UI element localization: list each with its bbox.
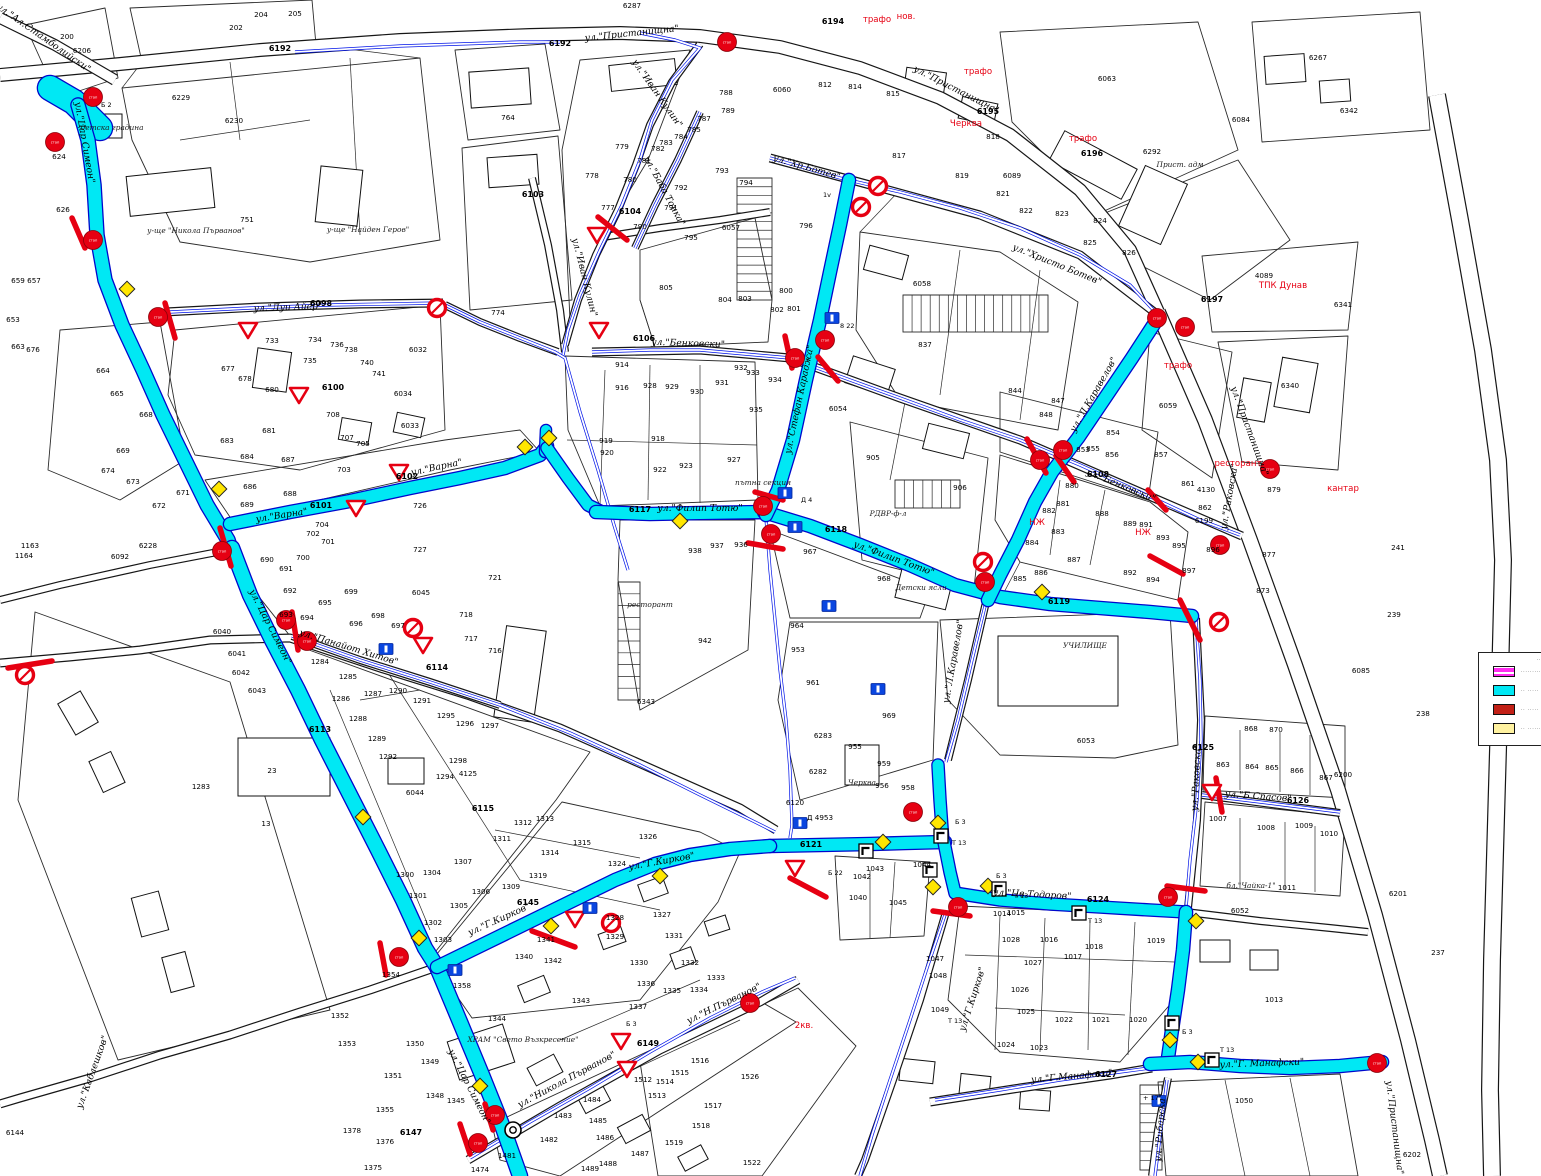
legend-item-route-red: ·· ·····	[1479, 700, 1541, 719]
parcel-number: 888	[1095, 509, 1109, 518]
parcel-number: 669	[116, 446, 130, 455]
parcel-number: 727	[413, 545, 427, 554]
parcel-number: 1328	[606, 913, 625, 922]
parcel-number: 700	[296, 553, 310, 562]
parcel-number: 1017	[1064, 952, 1082, 961]
parcel-number: 1378	[343, 1126, 362, 1135]
parcel-number: 681	[262, 426, 276, 435]
parcel-number: 1297	[481, 721, 499, 730]
parcel-number: 1348	[426, 1091, 445, 1100]
parcel-number: 892	[1123, 568, 1137, 577]
parcel-number: 1319	[529, 871, 548, 880]
parcel-number: 6084	[1232, 115, 1251, 124]
parcel-number: 1481	[498, 1151, 516, 1160]
parcel-number: 735	[303, 356, 317, 365]
parcel-number: 1342	[544, 956, 562, 965]
parcel-number: 659	[11, 276, 25, 285]
street-code: 6118	[825, 525, 848, 534]
parcel-number: 665	[110, 389, 124, 398]
parcel-number: 1312	[514, 818, 532, 827]
parcel-number: 733	[265, 336, 279, 345]
stop-sign-text: стоп	[491, 1113, 500, 1117]
parcel-number: 1290	[389, 686, 408, 695]
parcel-number: 1163	[21, 541, 39, 550]
parcel-number: 1283	[192, 782, 210, 791]
parcel-number: 6044	[406, 788, 425, 797]
building	[388, 758, 424, 784]
parcel-number: 1008	[1257, 823, 1276, 832]
facility-label: УЧИЛИЩЕ	[1063, 641, 1108, 650]
parcel-number: 792	[674, 183, 688, 192]
parcel-number: 1304	[423, 868, 442, 877]
street-code: 6121	[800, 840, 823, 849]
parcel-number: 1487	[631, 1149, 649, 1158]
parcel-number: 6201	[1389, 889, 1407, 898]
info-sign-glyph	[589, 905, 592, 912]
parcel-number: 804	[718, 295, 732, 304]
parcel-number: 1344	[488, 1014, 507, 1023]
info-sign-glyph	[784, 490, 787, 497]
parcel-number: 6060	[773, 85, 792, 94]
parcel-number: 931	[715, 378, 729, 387]
parcel-number: 856	[1105, 450, 1119, 459]
stop-sign-text: стоп	[1153, 316, 1162, 320]
parcel-number: 705	[356, 439, 370, 448]
parcel-number: 937	[710, 541, 724, 550]
parcel-number: 795	[684, 233, 698, 242]
facility-label-red: Черква	[950, 119, 982, 129]
parcel-number: 626	[56, 205, 70, 214]
parcel-number: 736	[330, 340, 344, 349]
parcel-number: 1376	[376, 1137, 395, 1146]
parcel-number: 701	[321, 537, 335, 546]
parcel-number: 1518	[692, 1121, 711, 1130]
parcel-number: 1009	[1295, 821, 1314, 830]
facility-label: ресторант	[627, 600, 673, 609]
parcel-number: 814	[848, 82, 862, 91]
legend-swatch-route-magenta	[1493, 666, 1515, 677]
parcel-number: 815	[886, 89, 900, 98]
parcel-number: 6052	[1231, 906, 1249, 915]
parcel-number: 1514	[656, 1077, 675, 1086]
street-name-label: ул."Филип Тотю"	[656, 503, 742, 514]
parcel-number: 674	[101, 466, 115, 475]
parcel-number: 1486	[596, 1133, 615, 1142]
parcel-number: 6228	[139, 541, 158, 550]
street-code: 6192	[549, 39, 571, 48]
parcel-number: 969	[882, 711, 896, 720]
building	[1200, 940, 1230, 962]
parcel-number: 6089	[1003, 171, 1022, 180]
parcel-number: 929	[665, 382, 679, 391]
parcel-number: 6045	[412, 588, 430, 597]
facility-label-red: НЖ	[1135, 528, 1151, 538]
parcel-number: 1354	[382, 970, 401, 979]
street-code: 6119	[1048, 597, 1071, 606]
street-code: 6103	[522, 190, 544, 199]
parcel-number: 802	[770, 305, 784, 314]
parcel-number: 1340	[515, 952, 534, 961]
parcel-number: 6043	[248, 686, 266, 695]
facility-label-red: ТПК Дунав	[1258, 281, 1307, 291]
parcel-number: 1526	[741, 1072, 760, 1081]
facility-label: ХРАМ "Свето Възкресение"	[466, 1035, 578, 1044]
parcel-number: 691	[279, 564, 293, 573]
facility-label-red: кантар	[1327, 484, 1359, 494]
parcel-number: 812	[818, 80, 832, 89]
parcel-number: 865	[1265, 763, 1279, 772]
street-code: 6101	[310, 501, 333, 510]
stop-sign-text: стоп	[89, 238, 98, 242]
parcel-number: 1164	[15, 551, 34, 560]
parcel-number: 699	[344, 587, 358, 596]
parcel-number: 826	[1122, 248, 1136, 257]
highlighted-street	[770, 842, 945, 846]
street-code: 6113	[309, 725, 331, 734]
stop-sign-text: стоп	[767, 532, 776, 536]
parcel-number: 1307	[454, 857, 472, 866]
stop-sign-text: стоп	[909, 810, 918, 814]
stop-sign-text: стоп	[1373, 1061, 1382, 1065]
parcel-number: 861	[1181, 479, 1195, 488]
parcel-number: 6144	[6, 1128, 25, 1137]
stop-sign-text: стоп	[954, 905, 963, 909]
stop-sign-text: стоп	[89, 95, 98, 99]
parcel-number: 708	[326, 410, 340, 419]
parcel-number: 1513	[648, 1091, 666, 1100]
parcel-number: 930	[690, 387, 704, 396]
parcel-number: 1483	[554, 1111, 572, 1120]
parcel-number: 1021	[1092, 1015, 1110, 1024]
parcel-number: 942	[698, 636, 712, 645]
parcel-number: 883	[1051, 527, 1065, 536]
sign-code-label: Б 2	[101, 101, 112, 109]
parcel-number: 683	[220, 436, 234, 445]
parcel-number: 959	[877, 759, 891, 768]
parcel-number: 1045	[889, 898, 907, 907]
parcel-number: 718	[459, 610, 473, 619]
parcel-number: 953	[791, 645, 805, 654]
direction-sign-icon	[934, 829, 948, 843]
parcel-number: 895	[1172, 541, 1186, 550]
parcel-number: 703	[337, 465, 351, 474]
legend: ·· ····· ··········· ······· ······· ···…	[1478, 652, 1541, 746]
parcel-number: 734	[308, 335, 322, 344]
facility-label: пътна секция	[735, 478, 791, 487]
parcel-number: 801	[787, 304, 801, 313]
parcel-number: 882	[1042, 506, 1056, 515]
parcel-number: 1291	[413, 696, 431, 705]
parcel-number: 821	[996, 189, 1010, 198]
legend-item-route-cyan: ·· ·····	[1479, 681, 1541, 700]
parcel-number: 1327	[653, 910, 671, 919]
parcel-number: 1335	[663, 986, 681, 995]
parcel-number: 721	[488, 573, 502, 582]
parcel-number: 935	[749, 405, 763, 414]
parcel-number: 692	[283, 586, 297, 595]
parcel-number: 1334	[690, 985, 709, 994]
parcel-number: 863	[1216, 760, 1230, 769]
parcel-number: 202	[229, 23, 243, 32]
parcel-number: 1049	[931, 1005, 950, 1014]
parcel-number: 780	[623, 175, 637, 184]
map-canvas[interactable]: стопстопстопстопстопстопстопстопстопстоп…	[0, 0, 1541, 1176]
parcel-number: 914	[615, 360, 629, 369]
info-sign-glyph	[799, 820, 802, 827]
parcel-number: 1018	[1085, 942, 1104, 951]
parcel-number: 657	[27, 276, 41, 285]
parcel-number: 1026	[1011, 985, 1030, 994]
parcel-number: 967	[803, 547, 817, 556]
parcel-number: 1298	[449, 756, 468, 765]
parcel-number: 1015	[1007, 908, 1025, 917]
parcel-number: 1337	[629, 1002, 647, 1011]
roundabout-sign-icon	[505, 1122, 521, 1138]
parcel-number: 784	[674, 132, 688, 141]
parcel-number: 1329	[606, 932, 625, 941]
parcel-number: 4130	[1197, 485, 1216, 494]
parcel-number: 864	[1245, 762, 1259, 771]
parcel-number: 964	[790, 621, 804, 630]
parcel-number: 751	[240, 215, 254, 224]
parcel-number: 1289	[368, 734, 387, 743]
parcel-number: 1515	[671, 1068, 689, 1077]
parcel-number: 1028	[1002, 935, 1021, 944]
parcel-number: 1315	[573, 838, 591, 847]
parcel-number: 1027	[1024, 958, 1042, 967]
parcel-number: 1301	[409, 891, 427, 900]
sign-code-label: Т 13	[1219, 1046, 1234, 1054]
parcel-number: 919	[599, 436, 613, 445]
parcel-number: 1285	[339, 672, 357, 681]
parcel-number: 6040	[213, 627, 232, 636]
parcel-number: 936	[734, 540, 748, 549]
parcel-number: 6340	[1281, 381, 1300, 390]
parcel-number: 764	[501, 113, 515, 122]
parcel-number: 1296	[456, 719, 475, 728]
parcel-number: 6202	[1403, 1150, 1421, 1159]
parcel-number: 1287	[364, 689, 382, 698]
parcel-number: 6058	[913, 279, 932, 288]
parcel-number: 1007	[1209, 814, 1227, 823]
parcel-number: 928	[643, 381, 657, 390]
parcel-number: 923	[679, 461, 693, 470]
facility-label: детска градина	[81, 123, 144, 132]
sign-code-label: Б 3	[955, 818, 966, 826]
parcel-number: 1474	[471, 1165, 490, 1174]
parcel-number: 6267	[1309, 53, 1327, 62]
parcel-number: 854	[1106, 428, 1120, 437]
parcel-number: 695	[318, 598, 332, 607]
facility-label: Черква	[848, 778, 876, 787]
parcel-number: 1019	[1147, 936, 1166, 945]
parcel-number: 684	[240, 452, 254, 461]
parcel-number: 1326	[639, 832, 658, 841]
sign-code-label: 8 22	[840, 322, 854, 330]
parcel-number: 934	[768, 375, 782, 384]
facility-label: Детски ясли	[894, 583, 947, 592]
parcel-number: 817	[892, 151, 906, 160]
parcel-number: 787	[697, 114, 711, 123]
parcel-number: 6054	[829, 404, 848, 413]
parcel-number: 1345	[447, 1096, 465, 1105]
parcel-number: 6057	[722, 223, 740, 232]
parcel-number: 200	[60, 32, 74, 41]
parcel-number: 793	[715, 166, 729, 175]
parcel-number: 1047	[926, 954, 944, 963]
parcel-number: 881	[1056, 499, 1070, 508]
parcel-number: 894	[1146, 575, 1160, 584]
parcel-number: 1025	[1017, 1007, 1035, 1016]
parcel-number: 777	[601, 203, 615, 212]
facility-label: РДВР-ф-л	[869, 509, 907, 518]
parcel-number: 1044	[913, 860, 932, 869]
parcel-number: 1309	[502, 882, 521, 891]
parcel-number: 1488	[599, 1159, 618, 1168]
facility-label-red: нов.	[897, 12, 916, 22]
parcel-number: 1306	[472, 887, 491, 896]
sign-code-label: 1v	[823, 191, 831, 199]
parcel-number: 717	[464, 634, 478, 643]
facility-label: Прист. адм	[1156, 160, 1204, 169]
parcel-number: 782	[651, 144, 665, 153]
parcel-number: 1303	[434, 935, 452, 944]
direction-sign-icon	[859, 844, 873, 858]
building	[1250, 950, 1278, 970]
stop-sign-text: стоп	[821, 338, 830, 342]
info-sign-glyph	[828, 603, 831, 610]
parcel-number: 1023	[1030, 1043, 1048, 1052]
parcel-number: 1352	[331, 1011, 349, 1020]
parcel-number: 938	[688, 546, 702, 555]
parcel-number: 819	[955, 171, 969, 180]
info-sign-glyph	[877, 686, 880, 693]
parcel-number: 676	[26, 345, 40, 354]
parcel-number: 205	[288, 9, 302, 18]
parcel-number: 822	[1019, 206, 1033, 215]
parcel-number: 13	[261, 819, 270, 828]
parcel-number: 740	[360, 358, 374, 367]
building	[126, 168, 215, 217]
stop-sign-text: стоп	[218, 549, 227, 553]
parcel-number: 868	[1244, 724, 1258, 733]
building	[899, 1058, 935, 1083]
parcel-number: 6342	[1340, 106, 1358, 115]
parcel-number: 1355	[376, 1105, 394, 1114]
parcel-number: 1484	[583, 1095, 602, 1104]
parcel-number: 6287	[623, 1, 641, 10]
parcel-number: 677	[221, 364, 235, 373]
parcel-number: 927	[727, 455, 741, 464]
facility-label-red: трафо	[1164, 361, 1192, 371]
stop-sign-text: стоп	[51, 140, 60, 144]
facility-label: бл."Чайка-1"	[1226, 881, 1275, 890]
parcel-number: 794	[739, 178, 753, 187]
parcel-number: 1013	[1265, 995, 1283, 1004]
info-sign-glyph	[385, 646, 388, 653]
parcel-number: 870	[1269, 725, 1283, 734]
stop-sign-text: стоп	[759, 504, 768, 508]
parcel-number: 6282	[809, 767, 827, 776]
parcel-number: 1353	[338, 1039, 356, 1048]
facility-label-red: НЖ	[1029, 518, 1045, 528]
parcel-number: 1294	[436, 772, 455, 781]
stop-sign-text: стоп	[154, 315, 163, 319]
parcel-number: 803	[738, 294, 752, 303]
parcel-number: 887	[1067, 555, 1081, 564]
parcel-number: 933	[746, 368, 760, 377]
info-sign-glyph	[454, 967, 457, 974]
parcel-number: 686	[243, 482, 257, 491]
parcel-number: 1324	[608, 859, 627, 868]
parcel-number: 1358	[453, 981, 472, 990]
parcel-number: 6092	[111, 552, 129, 561]
parcel-number: 6292	[1143, 147, 1161, 156]
parcel-number: 1516	[691, 1056, 710, 1065]
facility-label: у-ще "Найден Геров"	[326, 225, 409, 234]
street-code: 6114	[426, 663, 449, 672]
parcel-number: 4089	[1255, 271, 1274, 280]
parcel-number: 800	[779, 286, 793, 295]
parcel-number: 702	[306, 529, 320, 538]
parcel-number: 624	[52, 152, 66, 161]
parcel-number: 920	[600, 448, 614, 457]
parcel-number: 693	[279, 610, 293, 619]
parcel-number: 906	[953, 483, 967, 492]
parcel-number: 694	[300, 613, 314, 622]
stop-sign-text: стоп	[746, 1001, 755, 1005]
facility-label-red: трафо	[1069, 134, 1097, 144]
legend-swatch-route-red	[1493, 704, 1515, 715]
parcel-number: 893	[1156, 533, 1170, 542]
parcel-number: 823	[1055, 209, 1069, 218]
stop-sign-text: стоп	[1036, 458, 1045, 462]
stop-sign-text: стоп	[1059, 448, 1068, 452]
parcel-number: 889	[1123, 519, 1137, 528]
parcel-number: 1519	[665, 1138, 684, 1147]
parcel-number: 1350	[406, 1039, 425, 1048]
parcel-number: 663	[11, 342, 25, 351]
parcel-number: 1314	[541, 848, 560, 857]
parcel-number: 6042	[232, 668, 250, 677]
parcel-number: 680	[265, 385, 279, 394]
building	[1319, 79, 1350, 103]
street-code: 6194	[822, 17, 845, 26]
parcel-number: 774	[491, 308, 505, 317]
parcel-number: 6229	[172, 93, 191, 102]
parcel-number: 696	[349, 619, 363, 628]
parcel-number: 6230	[225, 116, 244, 125]
parcel-number: 879	[1267, 485, 1281, 494]
parcel-number: 1333	[707, 973, 725, 982]
parcel-number: 1040	[849, 893, 868, 902]
stop-sign-text: стоп	[723, 40, 732, 44]
parcel-number: 1375	[364, 1163, 382, 1172]
parcel-number: 857	[1154, 450, 1168, 459]
parcel-number: 6200	[1334, 770, 1353, 779]
parcel-number: 678	[238, 374, 252, 383]
parcel-number: 204	[254, 10, 268, 19]
parcel-number: 6085	[1352, 666, 1370, 675]
parcel-number: 1288	[349, 714, 368, 723]
parcel-number: 241	[1391, 543, 1405, 552]
parcel-number: 824	[1093, 216, 1107, 225]
parcel-number: 1305	[450, 901, 468, 910]
sign-code-label: Б 22	[828, 869, 843, 877]
parcel-number: 779	[615, 142, 629, 151]
building	[315, 166, 363, 226]
parcel-number: 805	[659, 283, 673, 292]
